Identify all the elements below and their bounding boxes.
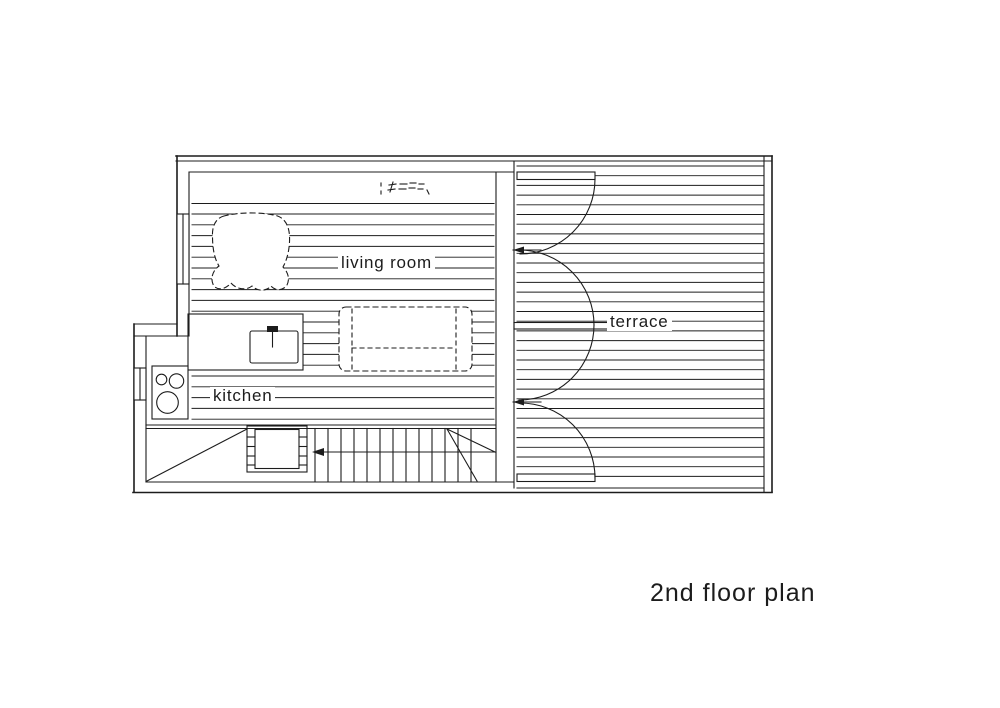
label-living-room: living room <box>338 254 435 272</box>
void-triangle <box>147 429 247 481</box>
staircase <box>312 429 496 482</box>
window-upper-left <box>177 214 189 284</box>
kitchen-counter <box>188 314 303 370</box>
faucet <box>267 326 278 332</box>
window-lower-left <box>134 368 146 400</box>
low-table-dashed <box>339 307 472 371</box>
stair-treads <box>315 429 471 482</box>
floor-plan-page: living room kitchen terrace 2nd floor pl… <box>0 0 1000 708</box>
loft-annotation-marks <box>381 182 429 194</box>
label-terrace: terrace <box>607 313 672 331</box>
door-swing-arc <box>520 179 595 254</box>
door-swing-arc <box>519 250 594 325</box>
storage-closet <box>247 426 307 472</box>
sink <box>250 331 298 363</box>
stair-break-line <box>447 429 477 481</box>
door-leaf <box>517 474 595 482</box>
terrace-doors <box>513 172 608 482</box>
floor-plan-drawing <box>0 0 1000 708</box>
door-leaf <box>517 172 595 180</box>
stove <box>152 366 188 419</box>
plan-title: 2nd floor plan <box>650 579 816 608</box>
stair-direction-arrow <box>312 448 496 456</box>
label-kitchen: kitchen <box>210 387 275 405</box>
floor-cushion-dashed <box>212 213 290 290</box>
